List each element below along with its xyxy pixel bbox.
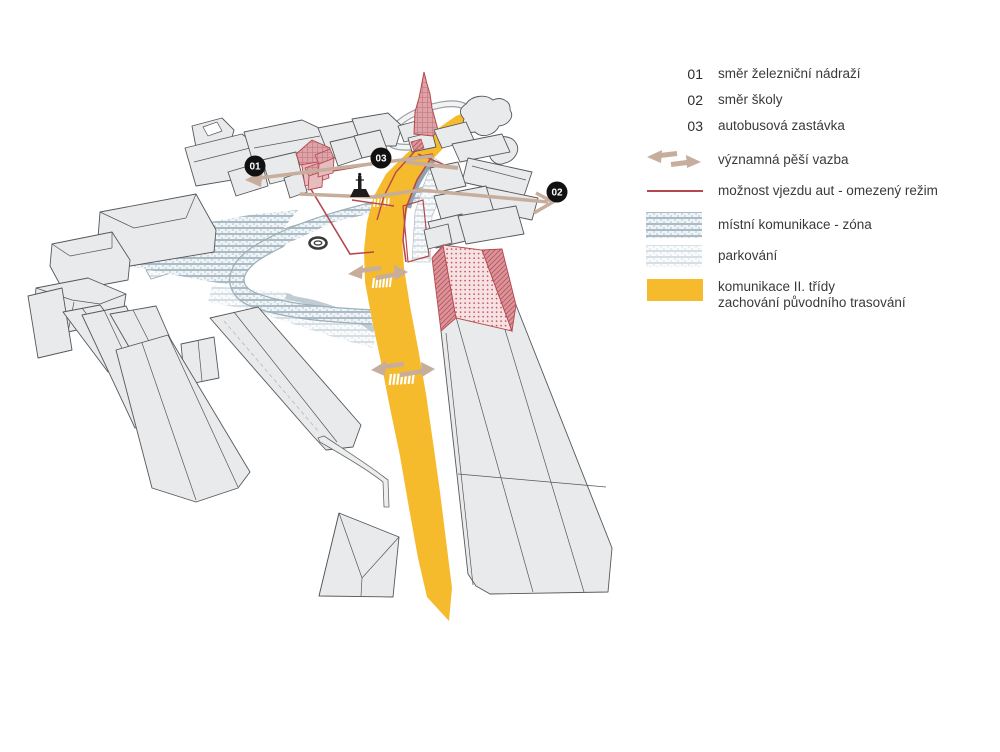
- legend-key-03: 03: [645, 118, 703, 134]
- legend-row-pedestrian: významná pěší vazba: [645, 148, 849, 172]
- badge-02: 02: [547, 182, 568, 203]
- legend-key-01: 01: [645, 66, 703, 82]
- long-building-southeast: [432, 245, 612, 594]
- legend-label-03: autobusová zastávka: [718, 118, 845, 134]
- urban-axonometric-diagram: 01 03 02 01 směr železniční nádraží 02 s…: [0, 0, 1000, 752]
- badge-01: 01: [245, 156, 266, 177]
- legend-label-road: komunikace II. třídy zachování původního…: [718, 279, 906, 311]
- legend-label-road-line1: komunikace II. třídy: [718, 279, 835, 294]
- legend-row-restricted: možnost vjezdu aut - omezený režim: [645, 183, 938, 199]
- legend-label-01: směr železniční nádraží: [718, 66, 861, 82]
- legend-row-zone: místní komunikace - zóna: [645, 212, 872, 238]
- zone-hatch-icon: [645, 212, 703, 238]
- fountain-ring: [310, 238, 327, 249]
- legend: 01 směr železniční nádraží 02 směr školy…: [645, 0, 995, 752]
- legend-row-road: komunikace II. třídy zachování původního…: [645, 279, 906, 311]
- pedestrian-arrows-icon: [645, 148, 703, 172]
- legend-label-parking: parkování: [718, 248, 777, 264]
- legend-label-zone: místní komunikace - zóna: [718, 217, 872, 233]
- legend-label-restricted: možnost vjezdu aut - omezený režim: [718, 183, 938, 199]
- legend-row-02: 02 směr školy: [645, 92, 783, 108]
- legend-row-03: 03 autobusová zastávka: [645, 118, 845, 134]
- restricted-line-icon: [647, 190, 703, 192]
- parking-hatch-icon: [645, 245, 703, 267]
- legend-row-parking: parkování: [645, 245, 777, 267]
- legend-label-02: směr školy: [718, 92, 783, 108]
- legend-key-02: 02: [645, 92, 703, 108]
- svg-text:02: 02: [551, 188, 563, 199]
- badge-03: 03: [371, 148, 392, 169]
- legend-label-road-line2: zachování původního trasování: [718, 295, 906, 310]
- monument-column: [350, 173, 370, 197]
- svg-text:01: 01: [249, 162, 261, 173]
- legend-label-pedestrian: významná pěší vazba: [718, 152, 849, 168]
- legend-row-01: 01 směr železniční nádraží: [645, 66, 861, 82]
- svg-text:03: 03: [375, 154, 387, 165]
- class-2-road-icon: [647, 279, 703, 301]
- buildings-layer: [28, 72, 612, 597]
